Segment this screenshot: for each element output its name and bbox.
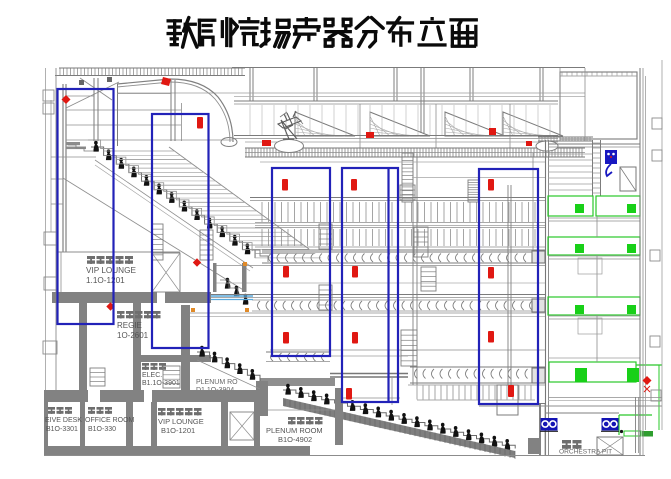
- svg-text:VIP LOUNGE: VIP LOUNGE: [158, 417, 204, 426]
- svg-text:B1O-330: B1O-330: [88, 426, 116, 433]
- svg-text:VIP LOUNGE: VIP LOUNGE: [86, 266, 136, 275]
- svg-text:B1O-3301: B1O-3301: [46, 426, 78, 433]
- svg-text:ELEC.: ELEC.: [142, 372, 162, 379]
- svg-text:PLENUM RO: PLENUM RO: [196, 379, 238, 386]
- svg-text:REGIE: REGIE: [117, 321, 142, 330]
- svg-text:B1O-4902: B1O-4902: [278, 435, 312, 444]
- svg-text:ORCHESTRA PIT: ORCHESTRA PIT: [559, 449, 612, 456]
- svg-text:B1O-1201: B1O-1201: [161, 426, 195, 435]
- svg-text:1O-2601: 1O-2601: [117, 331, 149, 340]
- svg-text:OFFICE ROOM: OFFICE ROOM: [85, 417, 135, 424]
- svg-text:1.1O-1201: 1.1O-1201: [86, 276, 125, 285]
- svg-text:PLENUM ROOM: PLENUM ROOM: [266, 426, 323, 435]
- svg-text:EIVE DESK: EIVE DESK: [45, 417, 82, 424]
